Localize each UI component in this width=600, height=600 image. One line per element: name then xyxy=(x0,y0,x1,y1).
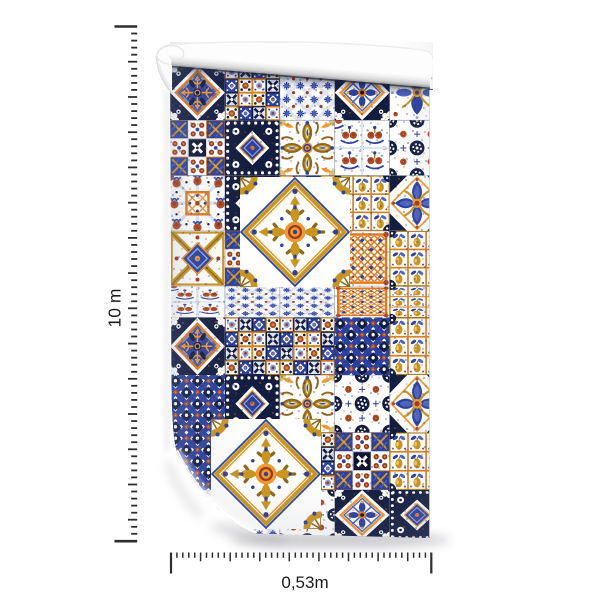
svg-text:10 m: 10 m xyxy=(105,289,125,328)
svg-text:0,53m: 0,53m xyxy=(281,573,328,592)
